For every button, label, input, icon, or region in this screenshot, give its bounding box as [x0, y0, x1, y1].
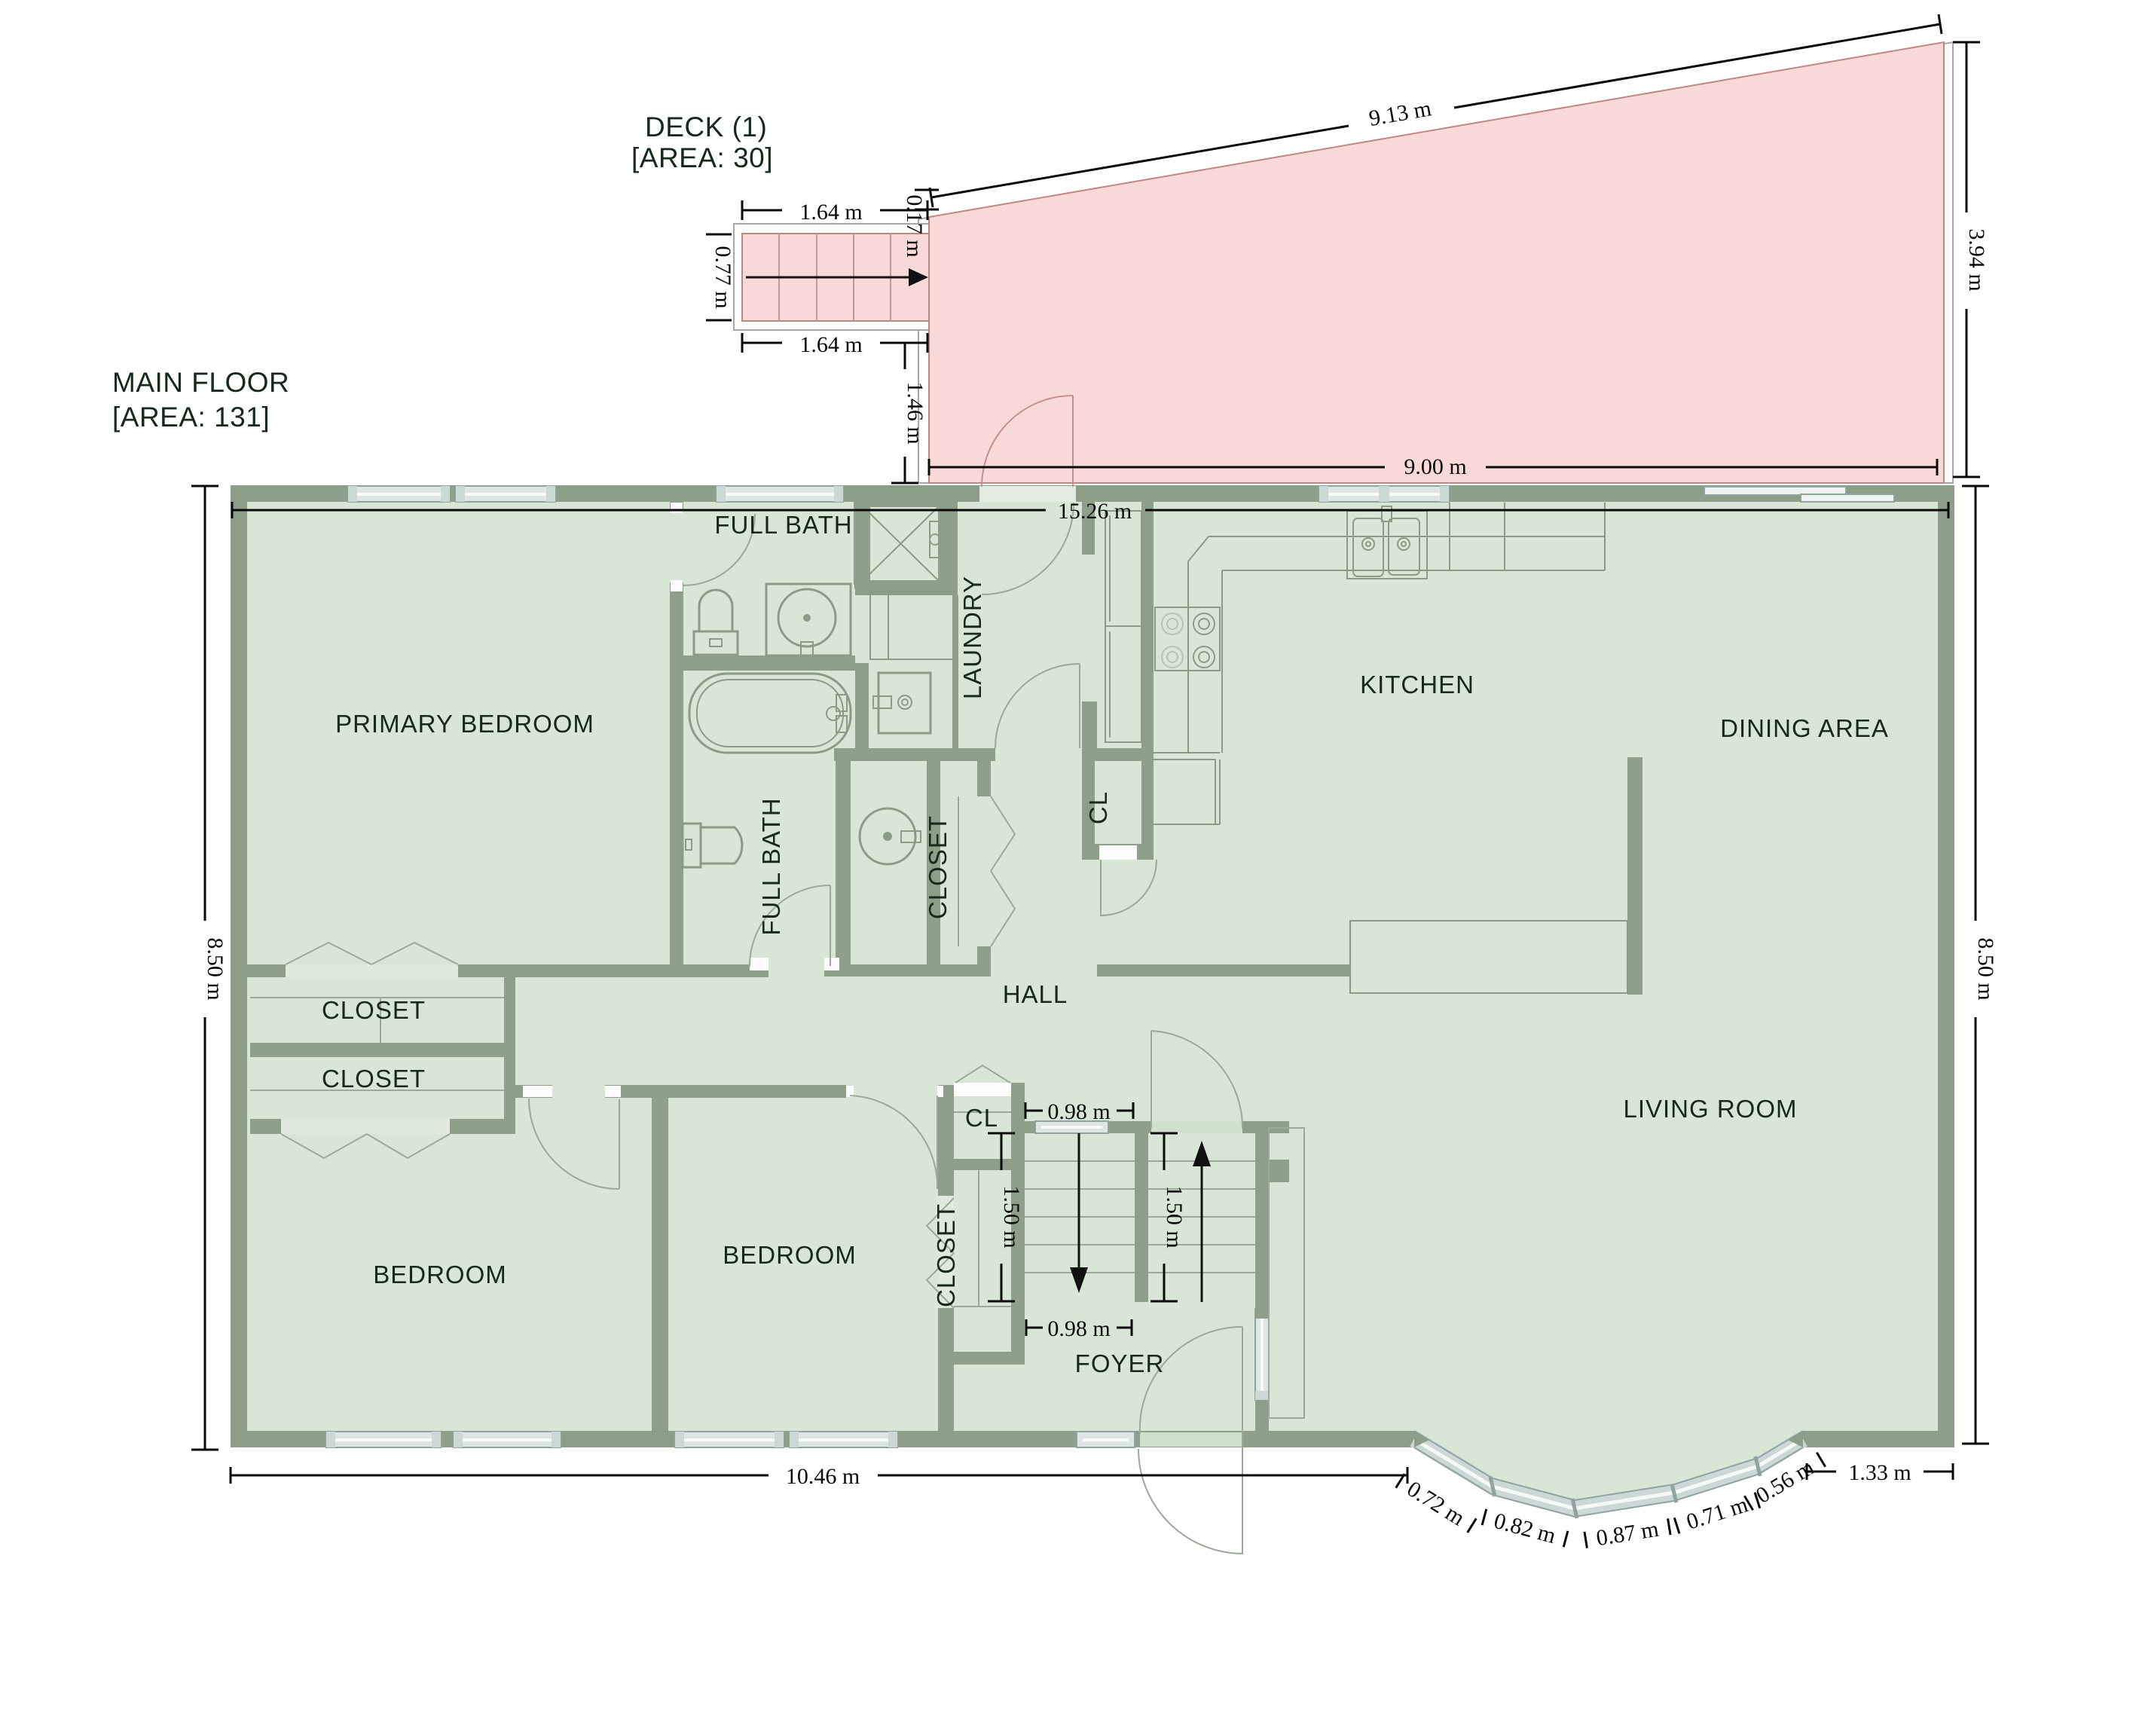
svg-text:1.50 m: 1.50 m — [1162, 1185, 1187, 1248]
svg-text:LAUNDRY: LAUNDRY — [958, 576, 986, 699]
svg-text:CLOSET: CLOSET — [932, 1203, 960, 1307]
svg-text:FOYER: FOYER — [1075, 1349, 1165, 1377]
svg-text:LIVING ROOM: LIVING ROOM — [1623, 1095, 1797, 1123]
svg-text:BEDROOM: BEDROOM — [373, 1261, 507, 1288]
svg-text:CLOSET: CLOSET — [322, 1065, 426, 1093]
svg-text:CL: CL — [965, 1104, 998, 1132]
svg-text:CLOSET: CLOSET — [322, 996, 426, 1024]
svg-text:0.98 m: 0.98 m — [1047, 1316, 1110, 1341]
svg-text:3.94 m: 3.94 m — [1964, 228, 1989, 291]
svg-text:1.33 m: 1.33 m — [1848, 1460, 1911, 1485]
svg-text:MAIN FLOOR: MAIN FLOOR — [112, 367, 289, 398]
svg-text:0.98 m: 0.98 m — [1047, 1099, 1110, 1124]
svg-text:HALL: HALL — [1003, 980, 1068, 1008]
svg-text:1.64 m: 1.64 m — [799, 200, 862, 225]
svg-text:DINING AREA: DINING AREA — [1720, 714, 1889, 742]
svg-text:1.46 m: 1.46 m — [903, 381, 927, 444]
svg-text:10.46 m: 10.46 m — [786, 1464, 860, 1489]
svg-text:PRIMARY BEDROOM: PRIMARY BEDROOM — [335, 710, 594, 738]
svg-text:15.26 m: 15.26 m — [1058, 499, 1132, 524]
svg-text:CL: CL — [1084, 791, 1112, 824]
svg-text:FULL BATH: FULL BATH — [714, 511, 852, 539]
svg-text:[AREA: 30]: [AREA: 30] — [631, 142, 773, 173]
svg-text:1.64 m: 1.64 m — [799, 332, 862, 357]
svg-text:[AREA: 131]: [AREA: 131] — [112, 402, 270, 432]
svg-text:FULL BATH: FULL BATH — [757, 797, 785, 935]
svg-text:8.50 m: 8.50 m — [203, 937, 228, 1000]
svg-text:8.50 m: 8.50 m — [1973, 937, 1998, 1000]
svg-text:9.00 m: 9.00 m — [1404, 454, 1466, 479]
svg-text:1.50 m: 1.50 m — [999, 1185, 1024, 1248]
svg-text:0.77 m: 0.77 m — [710, 246, 735, 308]
svg-text:DECK (1): DECK (1) — [645, 112, 767, 142]
svg-text:KITCHEN: KITCHEN — [1360, 671, 1474, 698]
svg-text:BEDROOM: BEDROOM — [723, 1241, 857, 1269]
svg-text:CLOSET: CLOSET — [924, 815, 952, 919]
svg-text:0.17 m: 0.17 m — [902, 194, 927, 257]
